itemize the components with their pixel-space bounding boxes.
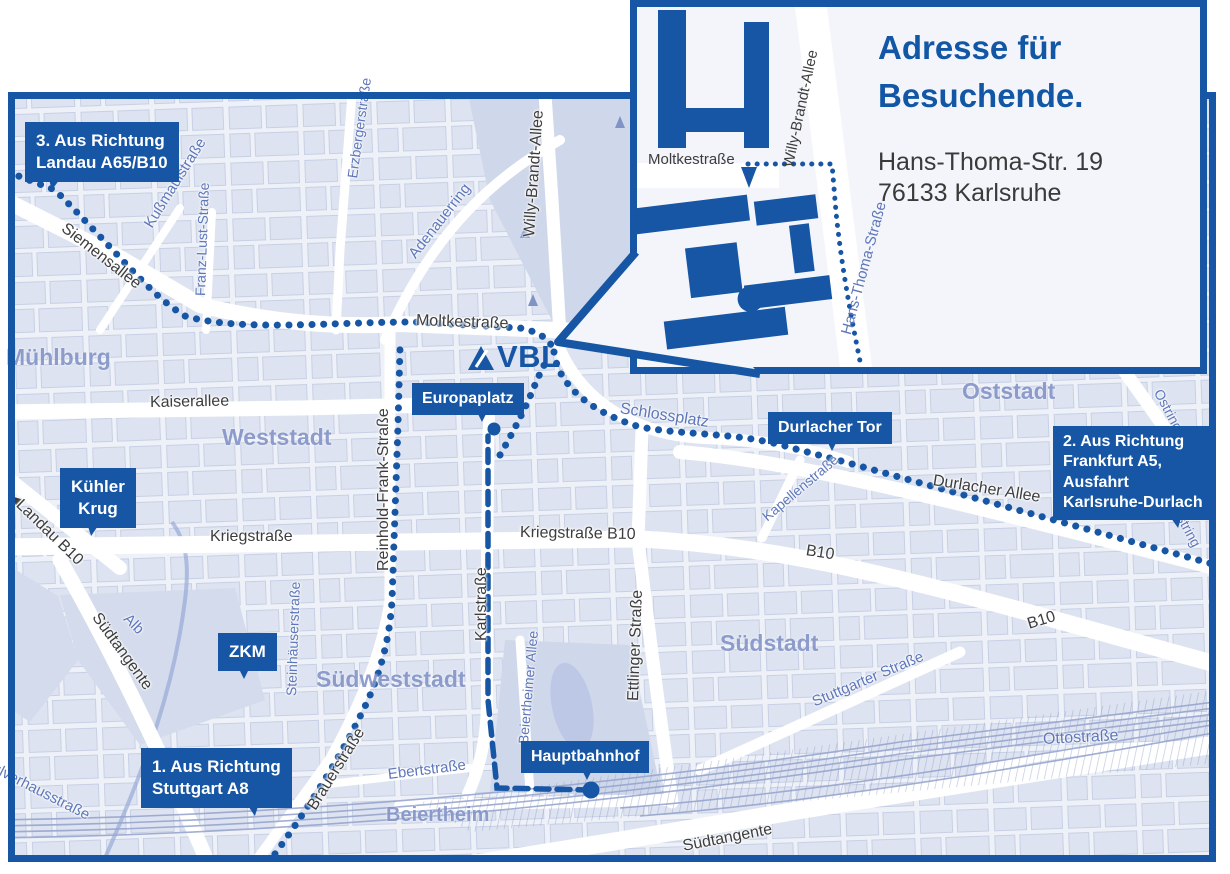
vbl-visitor-map: Mühlburg Weststadt Oststadt Südstadt Süd…	[0, 0, 1230, 874]
callout-stuttgart: 1. Aus Richtung Stuttgart A8	[141, 748, 292, 808]
callout-frankfurt: 2. Aus Richtung Frankfurt A5, Ausfahrt K…	[1053, 426, 1213, 520]
callout-durlacher-tor: Durlacher Tor	[768, 412, 892, 444]
callout-landau: 3. Aus Richtung Landau A65/B10	[25, 122, 179, 182]
inset-building-campus	[637, 186, 836, 352]
callout-pointer	[474, 406, 490, 430]
callout-pointer	[241, 796, 266, 826]
address-inset: Moltkestraße Willy-Brandt-Allee Hans-Tho…	[630, 0, 1207, 374]
inset-address: Hans-Thoma-Str. 19 76133 Karlsruhe	[878, 147, 1103, 209]
inset-building-north	[658, 10, 769, 148]
callout-kuehler-krug: Kühler Krug	[60, 468, 136, 528]
vbl-triangle-icon	[468, 346, 494, 370]
callout-zkm: ZKM	[218, 633, 277, 671]
vbl-logo: VBL	[468, 344, 561, 370]
callout-pointer	[579, 764, 595, 788]
callout-europaplatz: Europaplatz	[412, 383, 524, 415]
callout-hauptbahnhof: Hauptbahnhof	[521, 741, 649, 773]
callout-pointer	[234, 659, 254, 689]
inset-street-moltkestrasse: Moltkestraße	[648, 151, 735, 168]
inset-address-block: Adresse für Besuchende. Hans-Thoma-Str. …	[878, 24, 1103, 209]
inset-title: Adresse für Besuchende.	[878, 24, 1103, 120]
callout-pointer	[824, 435, 840, 459]
